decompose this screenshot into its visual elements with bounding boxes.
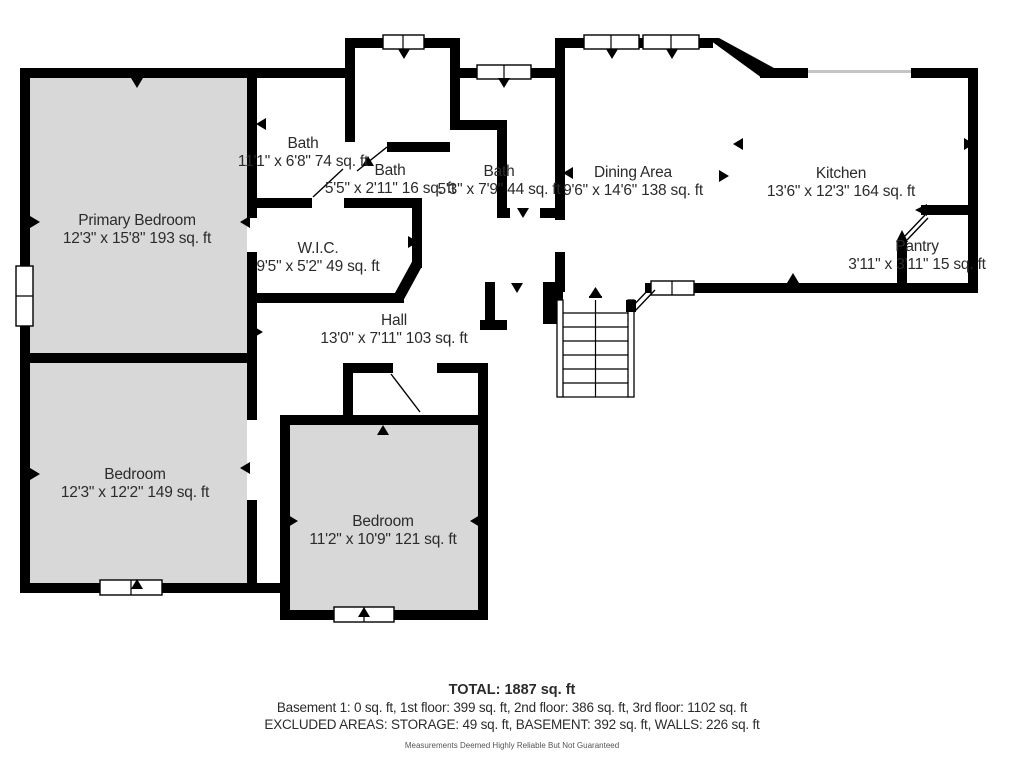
room-name: Dining Area xyxy=(563,164,703,182)
room-label-wic: W.I.C. 9'5" x 5'2" 49 sq. ft xyxy=(256,240,379,276)
room-label-primary-bedroom: Primary Bedroom 12'3" x 15'8" 193 sq. ft xyxy=(63,212,211,248)
room-label-dining-area: Dining Area 9'6" x 14'6" 138 sq. ft xyxy=(563,164,703,200)
summary-disclaimer: Measurements Deemed Highly Reliable But … xyxy=(0,741,1024,750)
window xyxy=(16,266,33,326)
summary-floors: Basement 1: 0 sq. ft, 1st floor: 399 sq.… xyxy=(0,699,1024,716)
room-dims: 9'6" x 14'6" 138 sq. ft xyxy=(563,182,703,200)
kitchen-opening-line xyxy=(808,70,911,73)
wic-diagonal-wall xyxy=(399,264,417,297)
window xyxy=(651,281,694,295)
window xyxy=(100,580,162,595)
room-label-bath-3: Bath 5'3" x 7'9" 44 sq. ft xyxy=(437,163,560,199)
diagonal-wall xyxy=(707,38,774,78)
window xyxy=(477,65,531,79)
room-label-kitchen: Kitchen 13'6" x 12'3" 164 sq. ft xyxy=(767,165,915,201)
room-label-bath-2: Bath 5'5" x 2'11" 16 sq. ft xyxy=(325,162,455,198)
summary-excluded: EXCLUDED AREAS: STORAGE: 49 sq. ft, BASE… xyxy=(0,716,1024,733)
window xyxy=(643,35,699,49)
room-name: Hall xyxy=(320,312,467,330)
room-name: Pantry xyxy=(848,238,986,256)
room-dims: 5'5" x 2'11" 16 sq. ft xyxy=(325,180,455,198)
room-dims: 13'6" x 12'3" 164 sq. ft xyxy=(767,183,915,201)
summary: TOTAL: 1887 sq. ft Basement 1: 0 sq. ft,… xyxy=(0,681,1024,750)
room-name: Bath xyxy=(437,163,560,181)
room-dims: 9'5" x 5'2" 49 sq. ft xyxy=(256,258,379,276)
room-label-hall: Hall 13'0" x 7'11" 103 sq. ft xyxy=(320,312,467,348)
room-dims: 12'3" x 12'2" 149 sq. ft xyxy=(61,484,209,502)
room-name: Bath xyxy=(238,135,368,153)
room-name: Kitchen xyxy=(767,165,915,183)
summary-total: TOTAL: 1887 sq. ft xyxy=(0,681,1024,699)
room-dims: 3'11" x 3'11" 15 sq. ft xyxy=(848,256,986,274)
room-dims: 5'3" x 7'9" 44 sq. ft xyxy=(437,181,560,199)
room-name: Bedroom xyxy=(309,513,456,531)
window xyxy=(383,35,424,49)
room-name: Primary Bedroom xyxy=(63,212,211,230)
floorplan-page: Primary Bedroom 12'3" x 15'8" 193 sq. ft… xyxy=(0,0,1024,768)
room-dims: 11'2" x 10'9" 121 sq. ft xyxy=(309,531,456,549)
room-name: Bedroom xyxy=(61,466,209,484)
room-label-bedroom-left: Bedroom 12'3" x 12'2" 149 sq. ft xyxy=(61,466,209,502)
room-label-pantry: Pantry 3'11" x 3'11" 15 sq. ft xyxy=(848,238,986,274)
room-dims: 12'3" x 15'8" 193 sq. ft xyxy=(63,230,211,248)
floorplan-drawing xyxy=(0,0,1024,768)
stairs xyxy=(557,287,655,397)
window xyxy=(584,35,639,49)
room-dims: 13'0" x 7'11" 103 sq. ft xyxy=(320,330,467,348)
stairs-up-arrow xyxy=(589,287,602,298)
room-name: Bath xyxy=(325,162,455,180)
room-name: W.I.C. xyxy=(256,240,379,258)
room-label-bedroom-center: Bedroom 11'2" x 10'9" 121 sq. ft xyxy=(309,513,456,549)
